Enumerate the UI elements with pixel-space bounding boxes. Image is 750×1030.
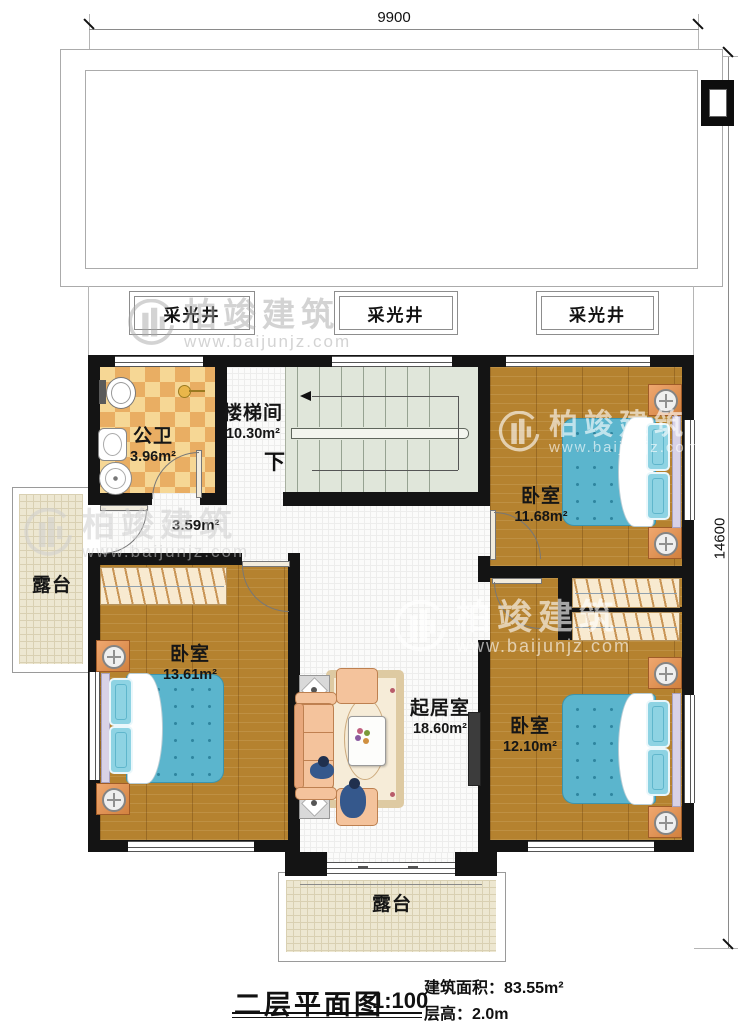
stair-walkline	[312, 396, 458, 397]
nightstand	[648, 384, 682, 416]
skylight-3: 采光井	[536, 291, 659, 335]
wardrobe	[100, 567, 227, 605]
lamp-icon	[654, 389, 678, 413]
balcony-stub-right	[455, 852, 497, 876]
pillow	[646, 700, 670, 748]
bed-headboard	[672, 416, 681, 528]
label-bedroom-left: 卧室 13.61m²	[142, 644, 238, 684]
wall	[200, 493, 227, 505]
label-bedroom-bottom-right: 卧室 12.10m²	[484, 716, 576, 756]
armchair	[336, 668, 378, 704]
nightstand	[648, 806, 682, 838]
wall	[558, 578, 572, 640]
label-terrace-bottom: 露台	[354, 894, 430, 917]
faucet-stem	[189, 390, 205, 392]
wall	[490, 566, 682, 578]
pillow	[646, 472, 670, 520]
terrace-door-opening	[88, 505, 100, 553]
label-bedroom-top-right: 卧室 11.68m²	[495, 486, 587, 526]
wall	[283, 492, 490, 506]
nightstand	[648, 527, 682, 559]
title-underline	[232, 1012, 422, 1018]
stair-down-label: 下	[264, 446, 285, 476]
toilet-icon	[106, 377, 136, 409]
wall	[100, 553, 242, 565]
roof-outline-inner	[85, 70, 698, 269]
label-hallway-area: 3.59m²	[172, 517, 220, 534]
pillow	[109, 678, 133, 726]
dimension-right-value: 14600	[712, 491, 729, 587]
skylight-1: 采光井	[129, 291, 255, 335]
lamp-icon	[654, 662, 678, 686]
label-terrace-left: 露台	[14, 575, 90, 598]
window	[528, 841, 654, 852]
stair-walkline	[312, 470, 458, 471]
coffee-table	[348, 716, 386, 766]
nightstand	[96, 640, 130, 672]
building-area: 建筑面积：83.55m²	[424, 974, 564, 998]
flower-decor	[357, 728, 363, 734]
sliding-door-handle	[358, 866, 368, 869]
window	[684, 695, 695, 803]
wall	[478, 367, 490, 492]
wardrobe	[572, 612, 680, 641]
lamp-icon	[654, 532, 678, 556]
lamp-icon	[102, 645, 126, 669]
stair-treads-lower	[297, 440, 433, 492]
sofa-backrest	[294, 703, 304, 789]
window	[506, 356, 650, 367]
sliding-door-handle	[408, 866, 418, 869]
nightstand	[96, 783, 130, 815]
building-edge-line	[88, 286, 89, 355]
stair-walkline	[458, 396, 459, 470]
terrace-sill-line	[300, 884, 482, 885]
dim-ext-line	[89, 14, 90, 52]
stair-handrail	[291, 428, 469, 439]
floor-height-label: 层高：	[424, 1006, 472, 1023]
wash-basin-icon	[99, 462, 132, 495]
dimension-top-value: 9900	[330, 9, 458, 26]
window	[128, 841, 254, 852]
building-area-label: 建筑面积：	[424, 980, 504, 997]
person-figure	[310, 762, 334, 779]
label-living-room: 起居室 18.60m²	[394, 698, 486, 738]
wall	[100, 493, 152, 505]
floor-height-value: 2.0m	[472, 1006, 508, 1023]
label-stairwell: 楼梯间 10.30m²	[206, 403, 300, 443]
window	[115, 356, 203, 367]
window	[332, 356, 452, 367]
person-figure	[340, 784, 366, 818]
toilet-icon	[99, 380, 106, 404]
balcony-stub-left	[285, 852, 327, 876]
pillow	[646, 423, 670, 471]
wall	[478, 556, 490, 582]
skylight-label: 采光井	[368, 301, 425, 326]
chimney-flue	[709, 89, 727, 117]
window	[89, 672, 100, 780]
building-area-value: 83.55m²	[504, 980, 564, 997]
skylight-label: 采光井	[164, 301, 221, 326]
sliding-door	[327, 862, 455, 874]
stair-direction-arrow	[300, 391, 311, 401]
drawing-scale: 1:100	[372, 988, 428, 1014]
chimney	[701, 80, 734, 126]
sofa-armrest	[295, 787, 337, 800]
label-bathroom: 公卫 3.96m²	[108, 426, 198, 466]
lamp-icon	[654, 811, 678, 835]
lamp-icon	[102, 788, 126, 812]
nightstand	[648, 657, 682, 689]
bed-headboard	[672, 693, 681, 807]
floor-plan-canvas: 9900 14600 采光井 采光井 采光井	[0, 0, 750, 1030]
skylight-2: 采光井	[334, 291, 458, 335]
skylight-label: 采光井	[569, 301, 626, 326]
stair-treads-upper	[297, 367, 433, 427]
pillow	[109, 726, 133, 774]
floor-height: 层高：2.0m	[424, 1000, 508, 1024]
wardrobe	[572, 578, 680, 608]
pillow	[646, 748, 670, 796]
building-edge-line	[693, 286, 694, 355]
dim-ext-line	[698, 14, 699, 52]
dimension-line-top	[89, 29, 699, 30]
window	[684, 420, 695, 520]
